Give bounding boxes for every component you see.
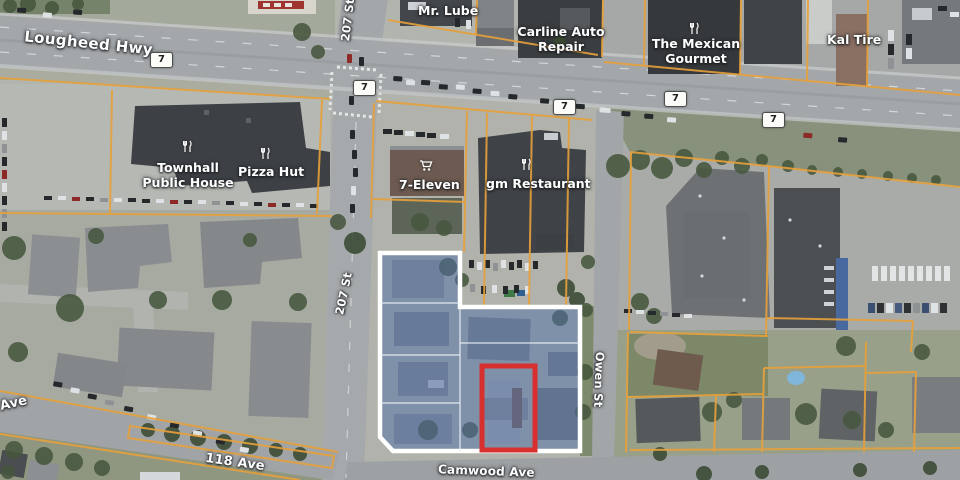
highway-shield-number: 7 [361, 83, 368, 93]
restaurant-icon [260, 147, 271, 160]
highway-7-shield: 7 [353, 80, 376, 96]
building-kal-tire [836, 14, 868, 86]
highway-shield-number: 7 [158, 55, 165, 65]
swimming-pool [787, 371, 805, 385]
shopping-cart-icon [419, 160, 433, 172]
satellite-map[interactable]: Lougheed Hwy 7 7 7 7 7 Mr. Lube Carline … [0, 0, 960, 480]
building-industrial-2 [774, 188, 840, 328]
building-7-eleven [390, 150, 464, 196]
building-mexican-gourmet [648, 0, 740, 74]
highway-shield-number: 7 [770, 115, 777, 125]
highway-7-shield: 7 [150, 52, 173, 68]
highway-7-shield: 7 [664, 91, 687, 107]
highway-7-shield: 7 [553, 99, 576, 115]
highway-shield-number: 7 [672, 94, 679, 104]
highway-7-shield: 7 [762, 112, 785, 128]
satellite-imagery-layer [0, 0, 960, 480]
restaurant-icon [182, 140, 193, 153]
restaurant-icon [689, 22, 700, 35]
highway-shield-number: 7 [561, 102, 568, 112]
restaurant-icon [521, 158, 532, 171]
